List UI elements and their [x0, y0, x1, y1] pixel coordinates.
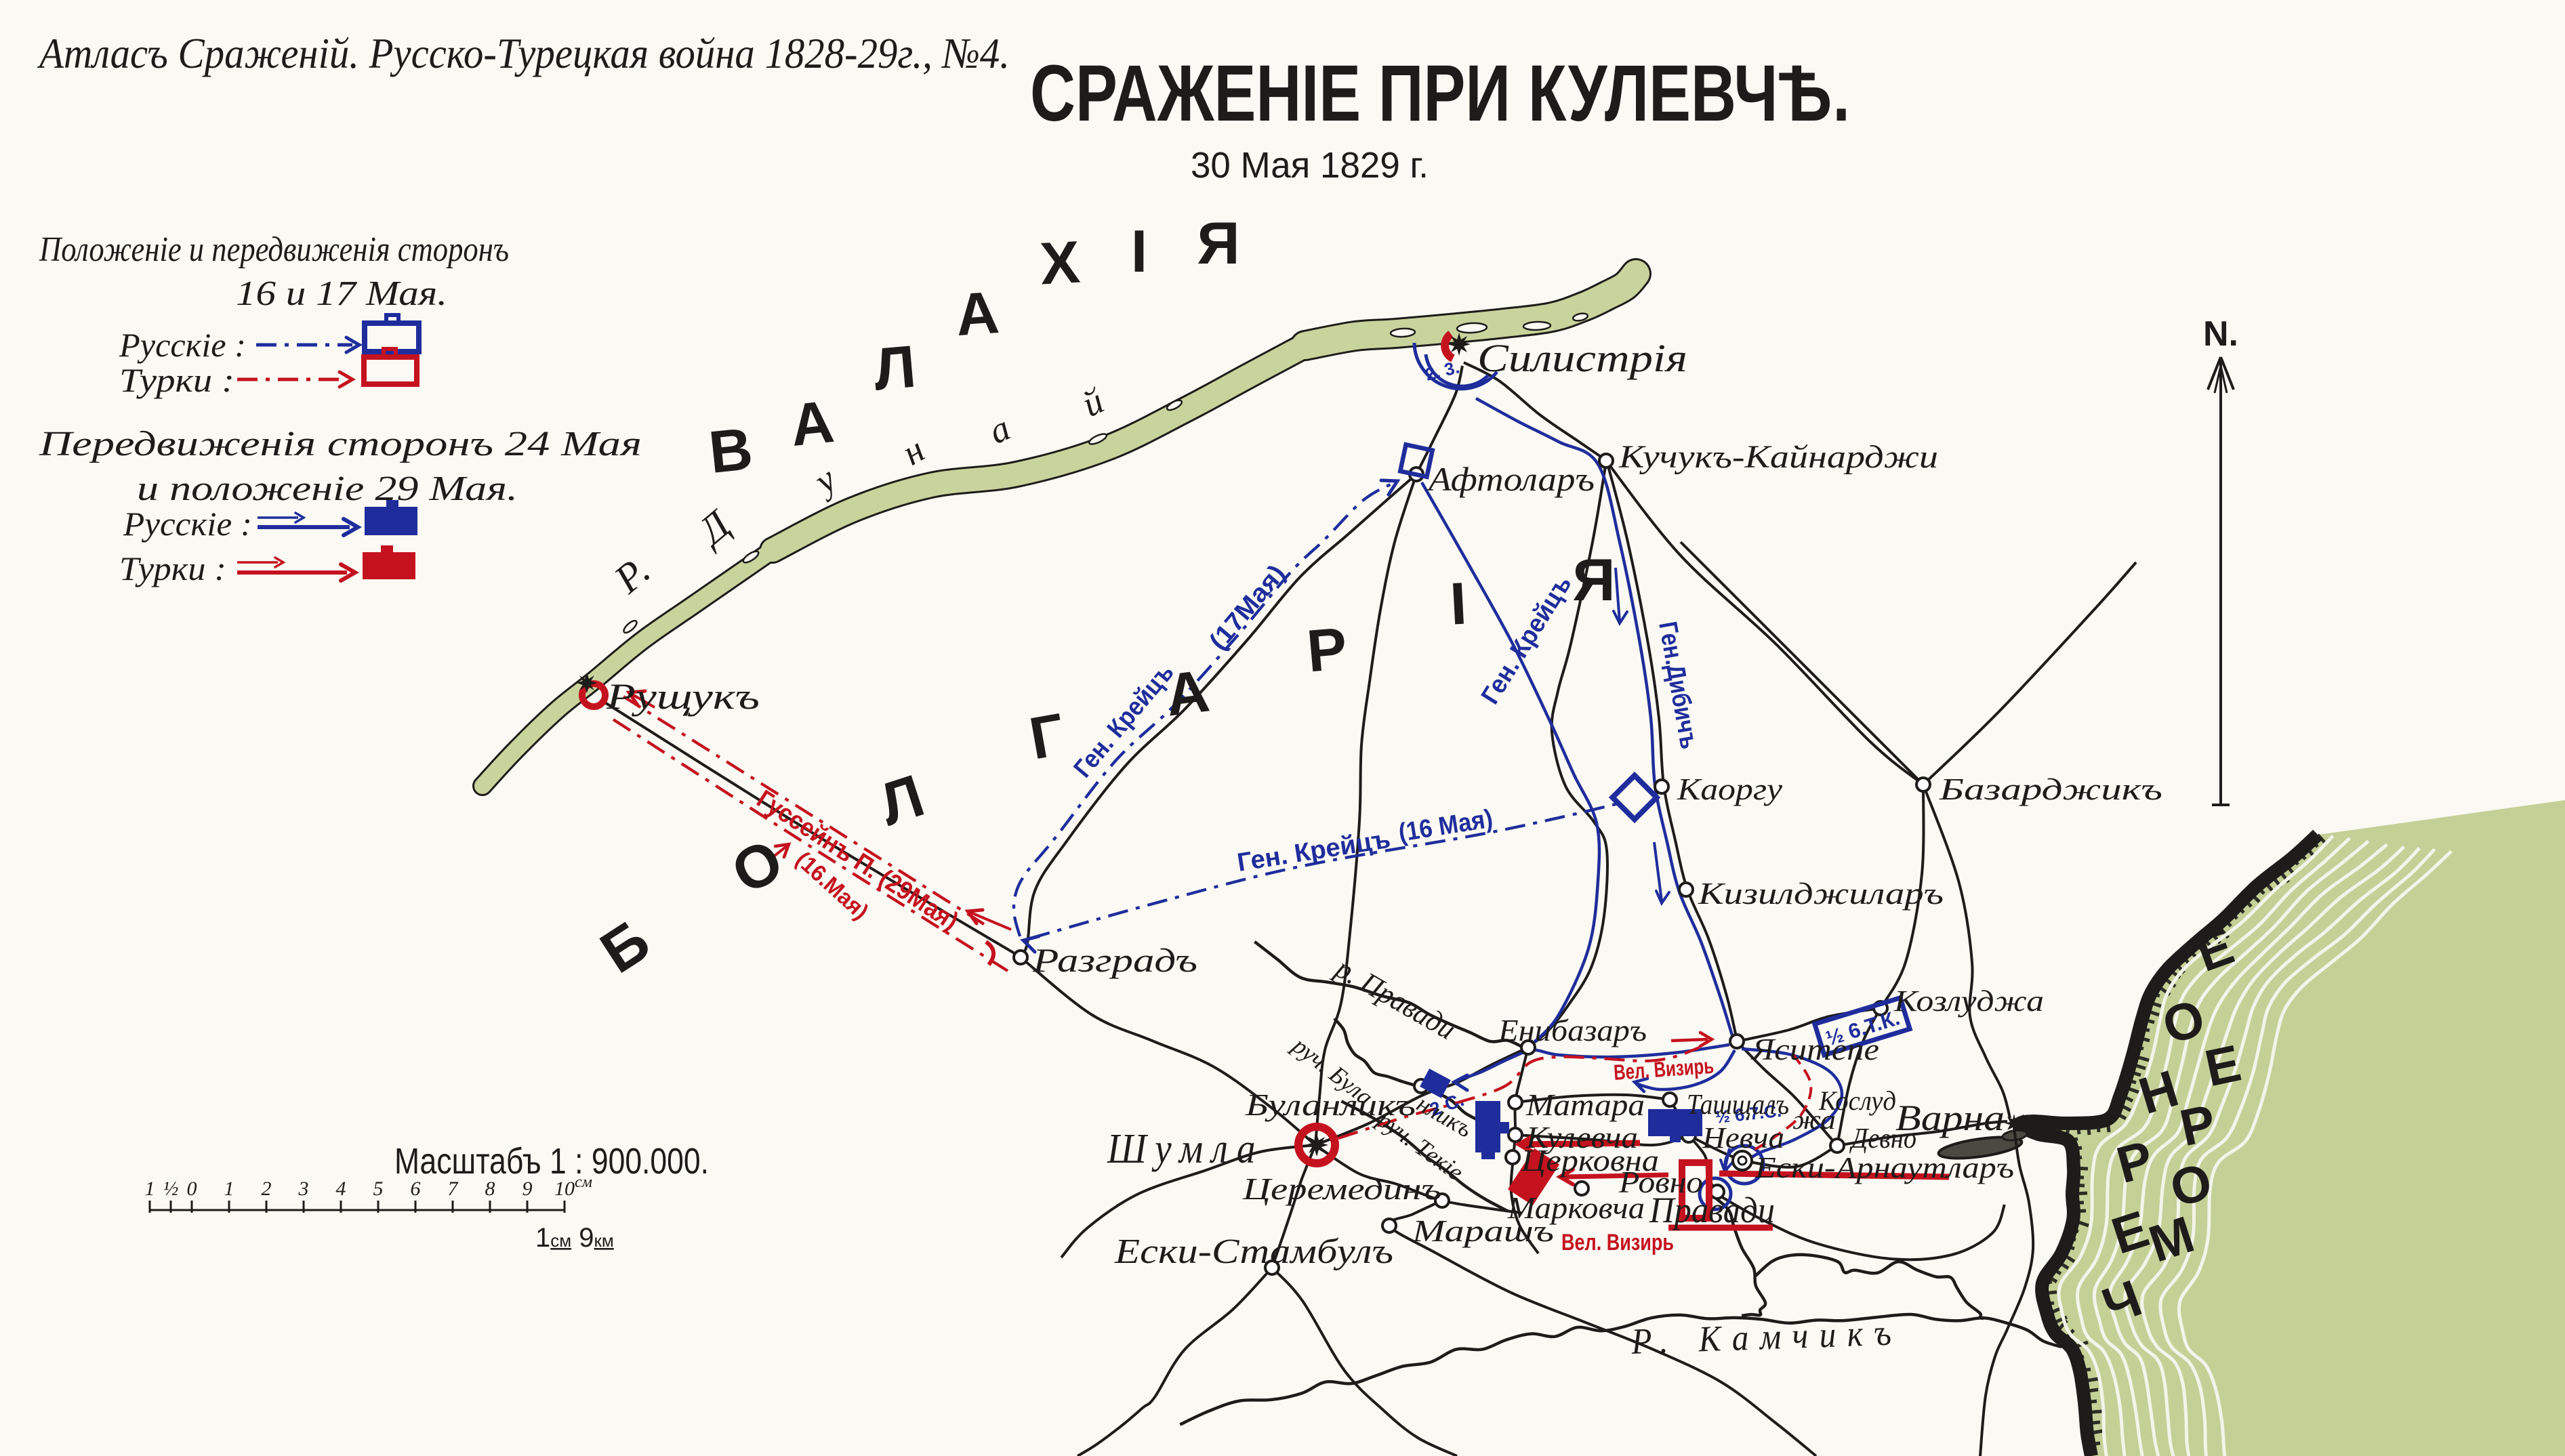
svg-text:Шумла: Шумла: [1107, 1126, 1264, 1172]
svg-text:Я: Я: [1197, 209, 1239, 276]
svg-text:Турки :: Турки :: [119, 549, 226, 587]
svg-text:І: І: [1448, 569, 1469, 637]
svg-text:9: 9: [522, 1178, 533, 1200]
svg-text:8: 8: [485, 1178, 495, 1200]
svg-text:N.: N.: [2203, 314, 2238, 354]
svg-text:5: 5: [373, 1178, 384, 1200]
svg-text:В: В: [705, 415, 756, 486]
svg-text:СРАЖЕНІЕ ПРИ КУЛЕВЧѢ.: СРАЖЕНІЕ ПРИ КУЛЕВЧѢ.: [1030, 49, 1850, 138]
svg-text:І: І: [1131, 217, 1147, 285]
svg-text:Передвиженія сторонъ 24 Мая: Передвиженія сторонъ 24 Мая: [39, 425, 642, 463]
svg-text:Варна: Варна: [1895, 1098, 2005, 1138]
svg-text:7: 7: [448, 1178, 459, 1200]
svg-text:6: 6: [411, 1178, 421, 1200]
svg-text:Масштабъ 1 : 900.000.: Масштабъ 1 : 900.000.: [394, 1141, 709, 1182]
svg-text:Русскіе :: Русскіе :: [123, 505, 252, 543]
svg-text:А: А: [1162, 657, 1212, 728]
svg-text:Каоргу: Каоргу: [1677, 772, 1783, 806]
svg-text:Марашъ: Марашъ: [1412, 1213, 1554, 1248]
svg-text:Атласъ Сраженій. Русско-Турецк: Атласъ Сраженій. Русско-Турецкая война 1…: [37, 29, 1010, 77]
svg-text:Правади: Правади: [1649, 1190, 1775, 1230]
svg-text:1: 1: [145, 1178, 155, 1200]
svg-text:Х: Х: [1038, 228, 1082, 297]
svg-text:Разградъ: Разградъ: [1032, 941, 1197, 979]
svg-text:Я: Я: [1572, 546, 1615, 613]
svg-text:и положеніе 29 Мая.: и положеніе 29 Мая.: [137, 470, 518, 508]
svg-text:Р: Р: [1304, 615, 1349, 685]
svg-text:30 Мая 1829 г.: 30 Мая 1829 г.: [1191, 145, 1429, 186]
svg-text:жа: жа: [1792, 1104, 1836, 1135]
svg-text:Яситепе: Яситепе: [1750, 1032, 1879, 1066]
svg-text:Ташщалъ: Ташщалъ: [1687, 1089, 1789, 1121]
svg-text:Ески-Арнаутларъ: Ески-Арнаутларъ: [1755, 1151, 2014, 1184]
svg-text:Ески-Стамбулъ: Ески-Стамбулъ: [1114, 1232, 1393, 1271]
svg-text:А: А: [787, 388, 837, 459]
svg-text:см: см: [575, 1173, 592, 1191]
svg-text:Енибазаръ: Енибазаръ: [1498, 1013, 1647, 1047]
svg-text:Вел. Визирь: Вел. Визирь: [1561, 1230, 1674, 1255]
svg-text:Козлуджа: Козлуджа: [1893, 984, 2044, 1018]
svg-text:0: 0: [187, 1178, 197, 1200]
svg-text:Силистрія: Силистрія: [1477, 336, 1687, 380]
svg-text:Афтоларъ: Афтоларъ: [1427, 460, 1595, 498]
svg-text:½: ½: [163, 1178, 179, 1200]
svg-text:3: 3: [298, 1178, 309, 1200]
svg-text:Л: Л: [871, 332, 918, 402]
svg-text:Русскіе :: Русскіе :: [119, 326, 246, 364]
svg-text:Невча: Невча: [1702, 1121, 1784, 1155]
svg-text:Турки :: Турки :: [119, 361, 234, 399]
svg-text:Рущукъ: Рущукъ: [606, 676, 760, 717]
svg-text:1: 1: [224, 1178, 234, 1200]
svg-text:А: А: [953, 278, 1001, 348]
svg-text:16 и 17 Мая.: 16 и 17 Мая.: [236, 274, 447, 313]
svg-text:Положеніе и передвиженія сторо: Положеніе и передвиженія сторонъ: [39, 230, 509, 269]
svg-text:Кизилджиларъ: Кизилджиларъ: [1698, 876, 1944, 911]
svg-text:Матара: Матара: [1525, 1087, 1645, 1122]
svg-text:2: 2: [262, 1178, 272, 1200]
svg-text:10: 10: [554, 1178, 575, 1200]
svg-text:Церемединъ: Церемединъ: [1242, 1171, 1441, 1206]
svg-text:4: 4: [336, 1178, 346, 1200]
svg-text:Базарджикъ: Базарджикъ: [1939, 772, 2162, 806]
svg-text:Кучукъ-Кайнарджи: Кучукъ-Кайнарджи: [1618, 439, 1938, 475]
